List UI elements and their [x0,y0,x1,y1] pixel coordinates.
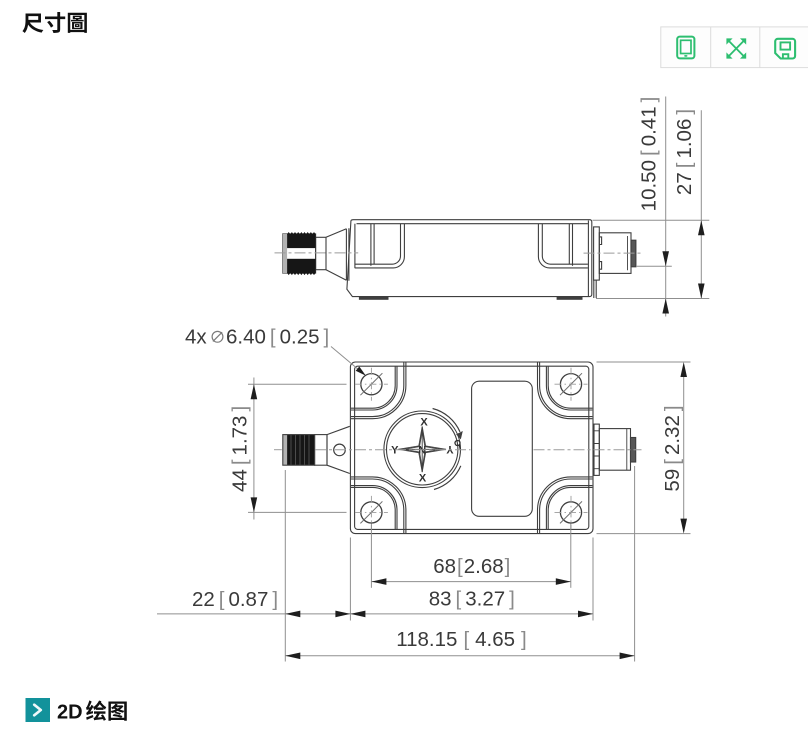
svg-text:6.40[0.25]: 6.40[0.25] [226,326,329,349]
svg-text:10.50[0.41]: 10.50[0.41] [638,97,661,212]
svg-text:22[0.87]: 22[0.87] [192,588,278,611]
svg-text:2D: 2D [57,702,83,724]
svg-text:4x: 4x [185,326,207,349]
svg-text:N: N [418,444,426,456]
svg-text:Y: Y [391,444,399,456]
svg-text:59[2.32]: 59[2.32] [661,405,684,491]
svg-text:118.15[4.65]: 118.15[4.65] [396,628,527,651]
svg-text:83[3.27]: 83[3.27] [429,587,515,610]
svg-text:27[1.06]: 27[1.06] [673,109,696,195]
svg-text:X: X [420,417,428,429]
svg-text:44[1.73]: 44[1.73] [229,406,252,492]
svg-text:X: X [419,473,427,485]
svg-text:68[2.68]: 68[2.68] [433,555,510,578]
